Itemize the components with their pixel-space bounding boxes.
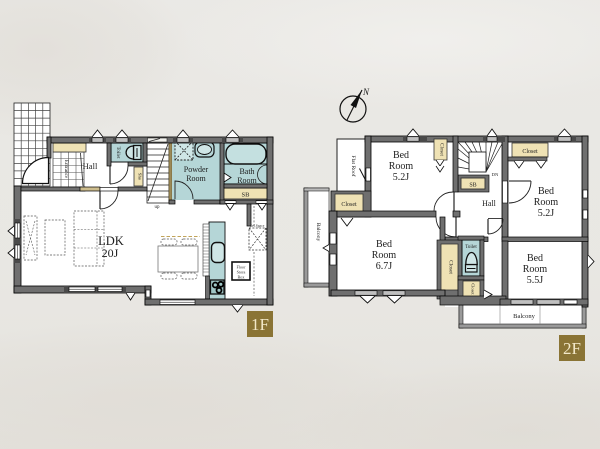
svg-text:Room: Room — [237, 176, 257, 185]
svg-text:Bed: Bed — [393, 150, 409, 161]
svg-text:Closet: Closet — [341, 202, 357, 208]
svg-text:N: N — [362, 87, 370, 97]
svg-text:Room: Room — [534, 197, 559, 208]
svg-text:Box: Box — [238, 275, 246, 280]
svg-text:5.2J: 5.2J — [538, 208, 555, 219]
svg-text:6.7J: 6.7J — [376, 261, 393, 272]
svg-text:Room: Room — [186, 174, 206, 183]
svg-text:Flat Roof: Flat Roof — [350, 155, 357, 176]
svg-text:5.5J: 5.5J — [527, 275, 544, 286]
svg-text:Ref.Space: Ref.Space — [250, 224, 265, 228]
svg-text:Toilet: Toilet — [465, 245, 477, 250]
svg-text:Room: Room — [389, 161, 414, 172]
svg-text:DN: DN — [492, 172, 499, 177]
svg-text:Closet: Closet — [439, 143, 444, 156]
svg-text:SB: SB — [242, 192, 251, 199]
svg-text:Hall: Hall — [482, 199, 497, 208]
svg-text:Bath: Bath — [239, 167, 254, 176]
svg-text:Entrance: Entrance — [63, 160, 69, 179]
svg-text:20J: 20J — [102, 246, 119, 260]
svg-text:Bed: Bed — [527, 253, 543, 264]
svg-text:Closet: Closet — [471, 283, 476, 295]
svg-text:Toilet: Toilet — [115, 146, 121, 159]
svg-text:Closet: Closet — [448, 260, 454, 274]
svg-text:Balcony: Balcony — [315, 223, 321, 242]
svg-text:SB: SB — [469, 183, 476, 189]
svg-text:Sho: Sho — [138, 173, 143, 181]
svg-text:Hall: Hall — [83, 161, 98, 171]
svg-text:Closet: Closet — [522, 149, 538, 155]
svg-text:Room: Room — [523, 264, 548, 275]
svg-text:Bed: Bed — [538, 186, 554, 197]
svg-text:up: up — [155, 205, 161, 210]
svg-text:1F: 1F — [251, 315, 269, 334]
svg-text:2F: 2F — [563, 339, 581, 358]
svg-text:5.2J: 5.2J — [393, 172, 410, 183]
svg-text:Room: Room — [372, 250, 397, 261]
svg-text:Bed: Bed — [376, 239, 392, 250]
svg-text:Powder: Powder — [184, 165, 209, 174]
svg-text:Balcony: Balcony — [513, 313, 535, 320]
